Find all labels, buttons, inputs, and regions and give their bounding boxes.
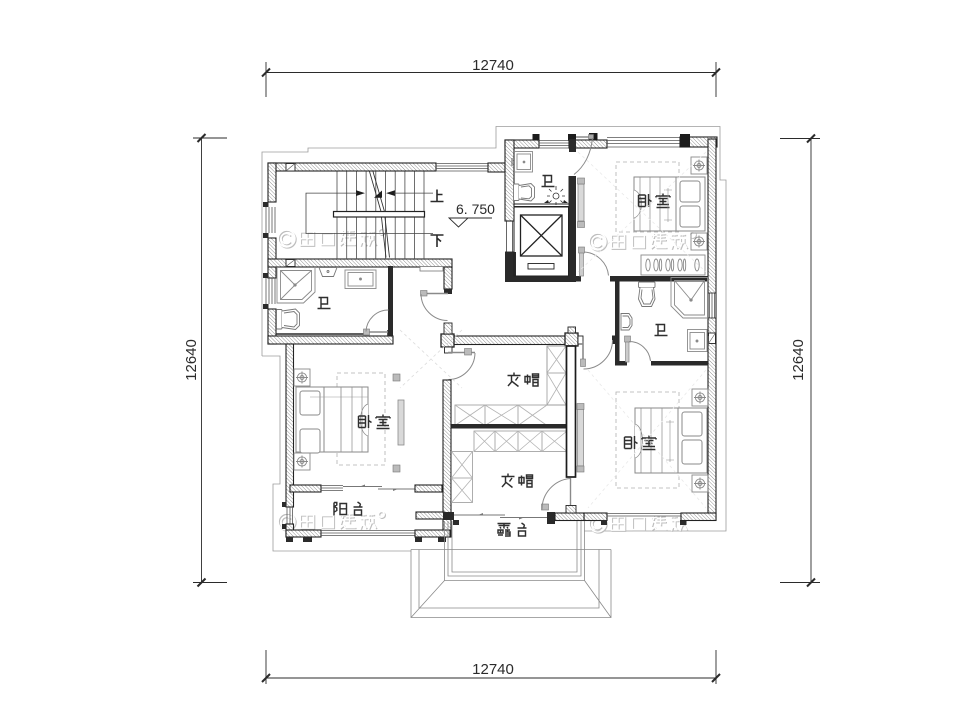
svg-text:6. 750: 6. 750 [456, 201, 495, 217]
svg-text:12740: 12740 [472, 57, 514, 74]
svg-text:12740: 12740 [472, 661, 514, 678]
svg-text:12640: 12640 [183, 339, 200, 381]
svg-text:12640: 12640 [790, 339, 807, 381]
